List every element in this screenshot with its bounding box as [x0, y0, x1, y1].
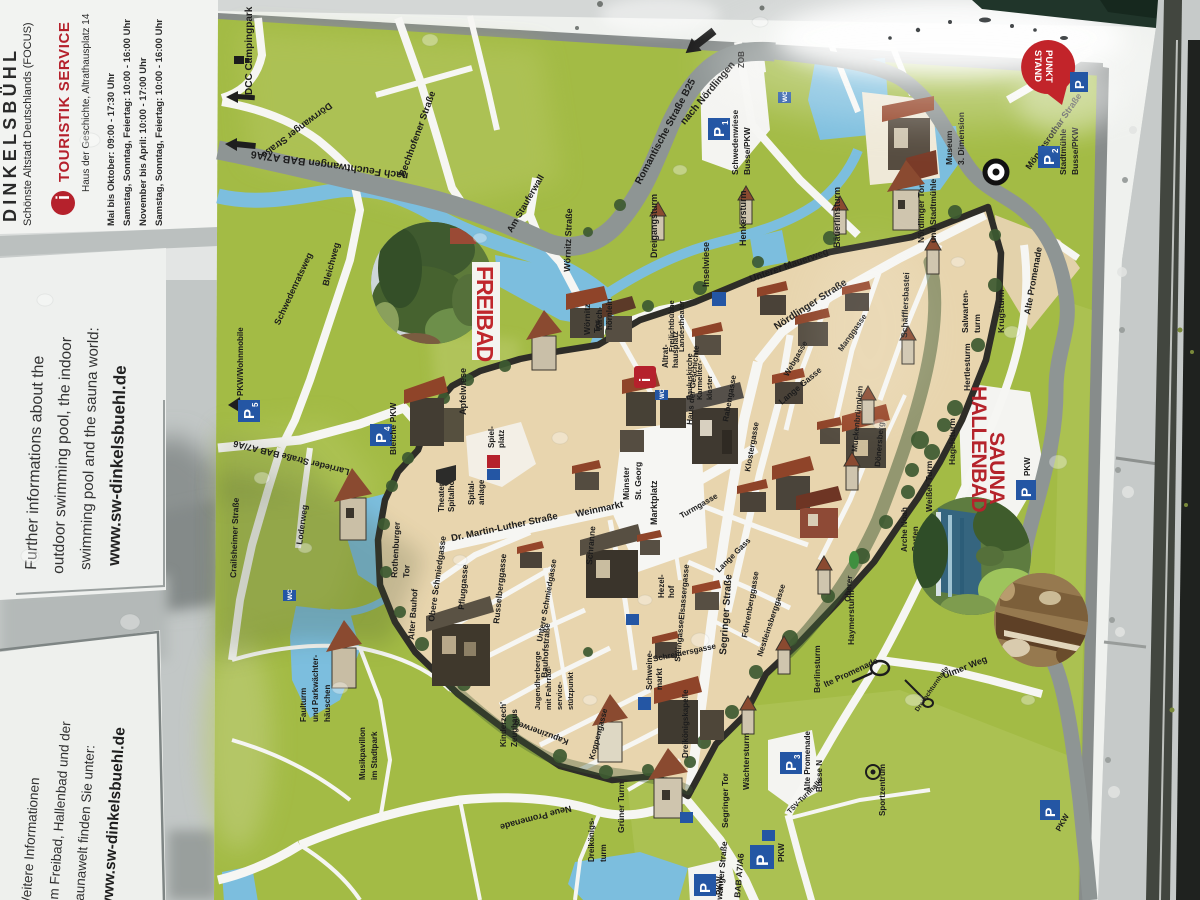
svg-text:Hezel-: Hezel- — [657, 574, 666, 598]
svg-text:häuschen: häuschen — [323, 685, 332, 722]
svg-text:PKW: PKW — [1023, 457, 1032, 476]
svg-text:PKW/Wohnmobile: PKW/Wohnmobile — [236, 327, 245, 396]
svg-text:Arche Noah: Arche Noah — [900, 507, 909, 552]
svg-text:P: P — [241, 409, 258, 419]
svg-text:Haus der Geschichte, Altrathau: Haus der Geschichte, Altrathausplatz 14 — [81, 13, 92, 192]
svg-text:Grüner Turm: Grüner Turm — [616, 781, 626, 833]
svg-text:Hertlesturm: Hertlesturm — [962, 343, 972, 391]
svg-text:DINKELSBÜHL: DINKELSBÜHL — [0, 47, 20, 222]
svg-text:SAUNA: SAUNA — [985, 432, 1008, 505]
svg-text:Kinderzech': Kinderzech' — [499, 702, 508, 747]
svg-text:Weißer Turm: Weißer Turm — [924, 460, 934, 512]
svg-text:STAND: STAND — [1032, 50, 1043, 82]
svg-text:P: P — [1041, 155, 1058, 165]
svg-text:Hagelsturm: Hagelsturm — [947, 418, 957, 465]
svg-text:WC: WC — [287, 589, 294, 600]
svg-text:Spital-: Spital- — [467, 480, 476, 505]
svg-text:5: 5 — [251, 402, 260, 407]
svg-text:kloster: kloster — [705, 375, 714, 400]
svg-text:Zeughaus: Zeughaus — [510, 709, 519, 747]
svg-text:Bleiche PKW: Bleiche PKW — [388, 402, 398, 455]
svg-text:Samstag, Sonntag, Feiertag:: Samstag, Sonntag, Feiertag: 10:00 - 16:0… — [154, 19, 165, 226]
svg-text:P: P — [697, 883, 714, 893]
svg-text:und Parkwächter-: und Parkwächter- — [311, 655, 320, 722]
svg-text:Wörnitz: Wörnitz — [582, 304, 592, 335]
svg-text:Musikpavillon: Musikpavillon — [358, 727, 367, 780]
svg-text:Krugsturm: Krugsturm — [996, 289, 1006, 333]
svg-text:und Stadtmühle: und Stadtmühle — [928, 179, 938, 243]
svg-text:Salwarten-: Salwarten- — [960, 290, 970, 333]
svg-text:Spiel-: Spiel- — [487, 426, 496, 448]
svg-text:i: i — [637, 378, 654, 382]
svg-text:stützpunkt: stützpunkt — [566, 672, 575, 710]
svg-text:Henkersturm: Henkersturm — [738, 190, 748, 246]
svg-text:im Stadtpark: im Stadtpark — [370, 731, 379, 780]
svg-text:mit Fahrrad-: mit Fahrrad- — [544, 666, 553, 710]
svg-text:markt: markt — [655, 668, 664, 690]
svg-text:FREIBAD: FREIBAD — [472, 266, 498, 362]
svg-text:hof: hof — [667, 585, 676, 598]
svg-text:November bis April: 1: November bis April: 10:00 - 17:00 Uhr — [138, 57, 149, 226]
svg-text:P: P — [753, 855, 772, 866]
svg-text:Museum: Museum — [944, 130, 954, 165]
svg-text:Samstag, Sonntag, Feiertag:: Samstag, Sonntag, Feiertag: 10:00 - 16:0… — [122, 19, 133, 226]
svg-text:St. Georg: St. Georg — [633, 462, 643, 500]
svg-text:Inselwiese: Inselwiese — [701, 242, 711, 287]
svg-text:Münster: Münster — [621, 466, 631, 500]
svg-text:2: 2 — [1051, 148, 1060, 153]
svg-text:1: 1 — [721, 120, 730, 125]
svg-text:P: P — [1072, 80, 1087, 89]
svg-text:DCC Campingpark: DCC Campingpark — [244, 6, 255, 95]
svg-text:P: P — [711, 127, 728, 137]
svg-text:PUNKT: PUNKT — [1043, 50, 1054, 83]
svg-text:Wächtersturm: Wächtersturm — [741, 732, 751, 790]
svg-text:P: P — [1042, 808, 1058, 817]
svg-text:Berlinsturm: Berlinsturm — [812, 645, 822, 693]
svg-text:hausplatz: hausplatz — [671, 331, 680, 368]
svg-text:3: 3 — [793, 754, 802, 759]
svg-text:Alte Promenade: Alte Promenade — [803, 731, 812, 792]
svg-text:Schwedenwiese: Schwedenwiese — [730, 110, 740, 175]
svg-text:turm: turm — [599, 844, 608, 862]
svg-text:Busse/PKW: Busse/PKW — [742, 126, 752, 175]
svg-text:Tor: Tor — [401, 564, 412, 578]
svg-text:platz: platz — [497, 430, 506, 448]
svg-text:Schönste Altstadt Deutschlands: Schönste Altstadt Deutschlands (FOCUS) — [22, 22, 34, 226]
svg-text:P: P — [783, 761, 800, 771]
svg-text:Segringer Tor: Segringer Tor — [720, 772, 730, 828]
svg-text:Jugendherberge: Jugendherberge — [533, 651, 542, 710]
svg-text:Marktplatz: Marktplatz — [649, 480, 659, 525]
svg-text:Mai bis Oktober:: Mai bis Oktober: 09:00 - 17:30 Uhr — [106, 73, 117, 226]
svg-text:WC: WC — [660, 388, 666, 399]
svg-text:service-: service- — [555, 681, 564, 710]
svg-text:TOURISTIK SERVICE: TOURISTIK SERVICE — [56, 21, 73, 182]
svg-text:Apfelwiese: Apfelwiese — [458, 368, 468, 415]
svg-text:Faulturm: Faulturm — [299, 688, 308, 722]
svg-text:Dreikönigs-: Dreikönigs- — [587, 818, 596, 862]
svg-text:Dreikönigskapelle: Dreikönigskapelle — [681, 689, 690, 758]
svg-text:turm: turm — [972, 314, 982, 333]
svg-text:Altrat-: Altrat- — [661, 344, 670, 368]
svg-text:Nördlinger Tor: Nördlinger Tor — [916, 184, 926, 243]
svg-text:P: P — [1018, 488, 1034, 497]
svg-text:hörnlein: hörnlein — [605, 298, 614, 330]
svg-text:PKW: PKW — [777, 843, 786, 862]
svg-text:Dreigangsturm: Dreigangsturm — [649, 194, 659, 258]
svg-text:Kirch-: Kirch- — [595, 307, 604, 330]
svg-text:anlage: anlage — [477, 479, 486, 505]
svg-text:i: i — [53, 195, 73, 200]
svg-text:Bäuerlinsturm: Bäuerlinsturm — [832, 187, 842, 248]
